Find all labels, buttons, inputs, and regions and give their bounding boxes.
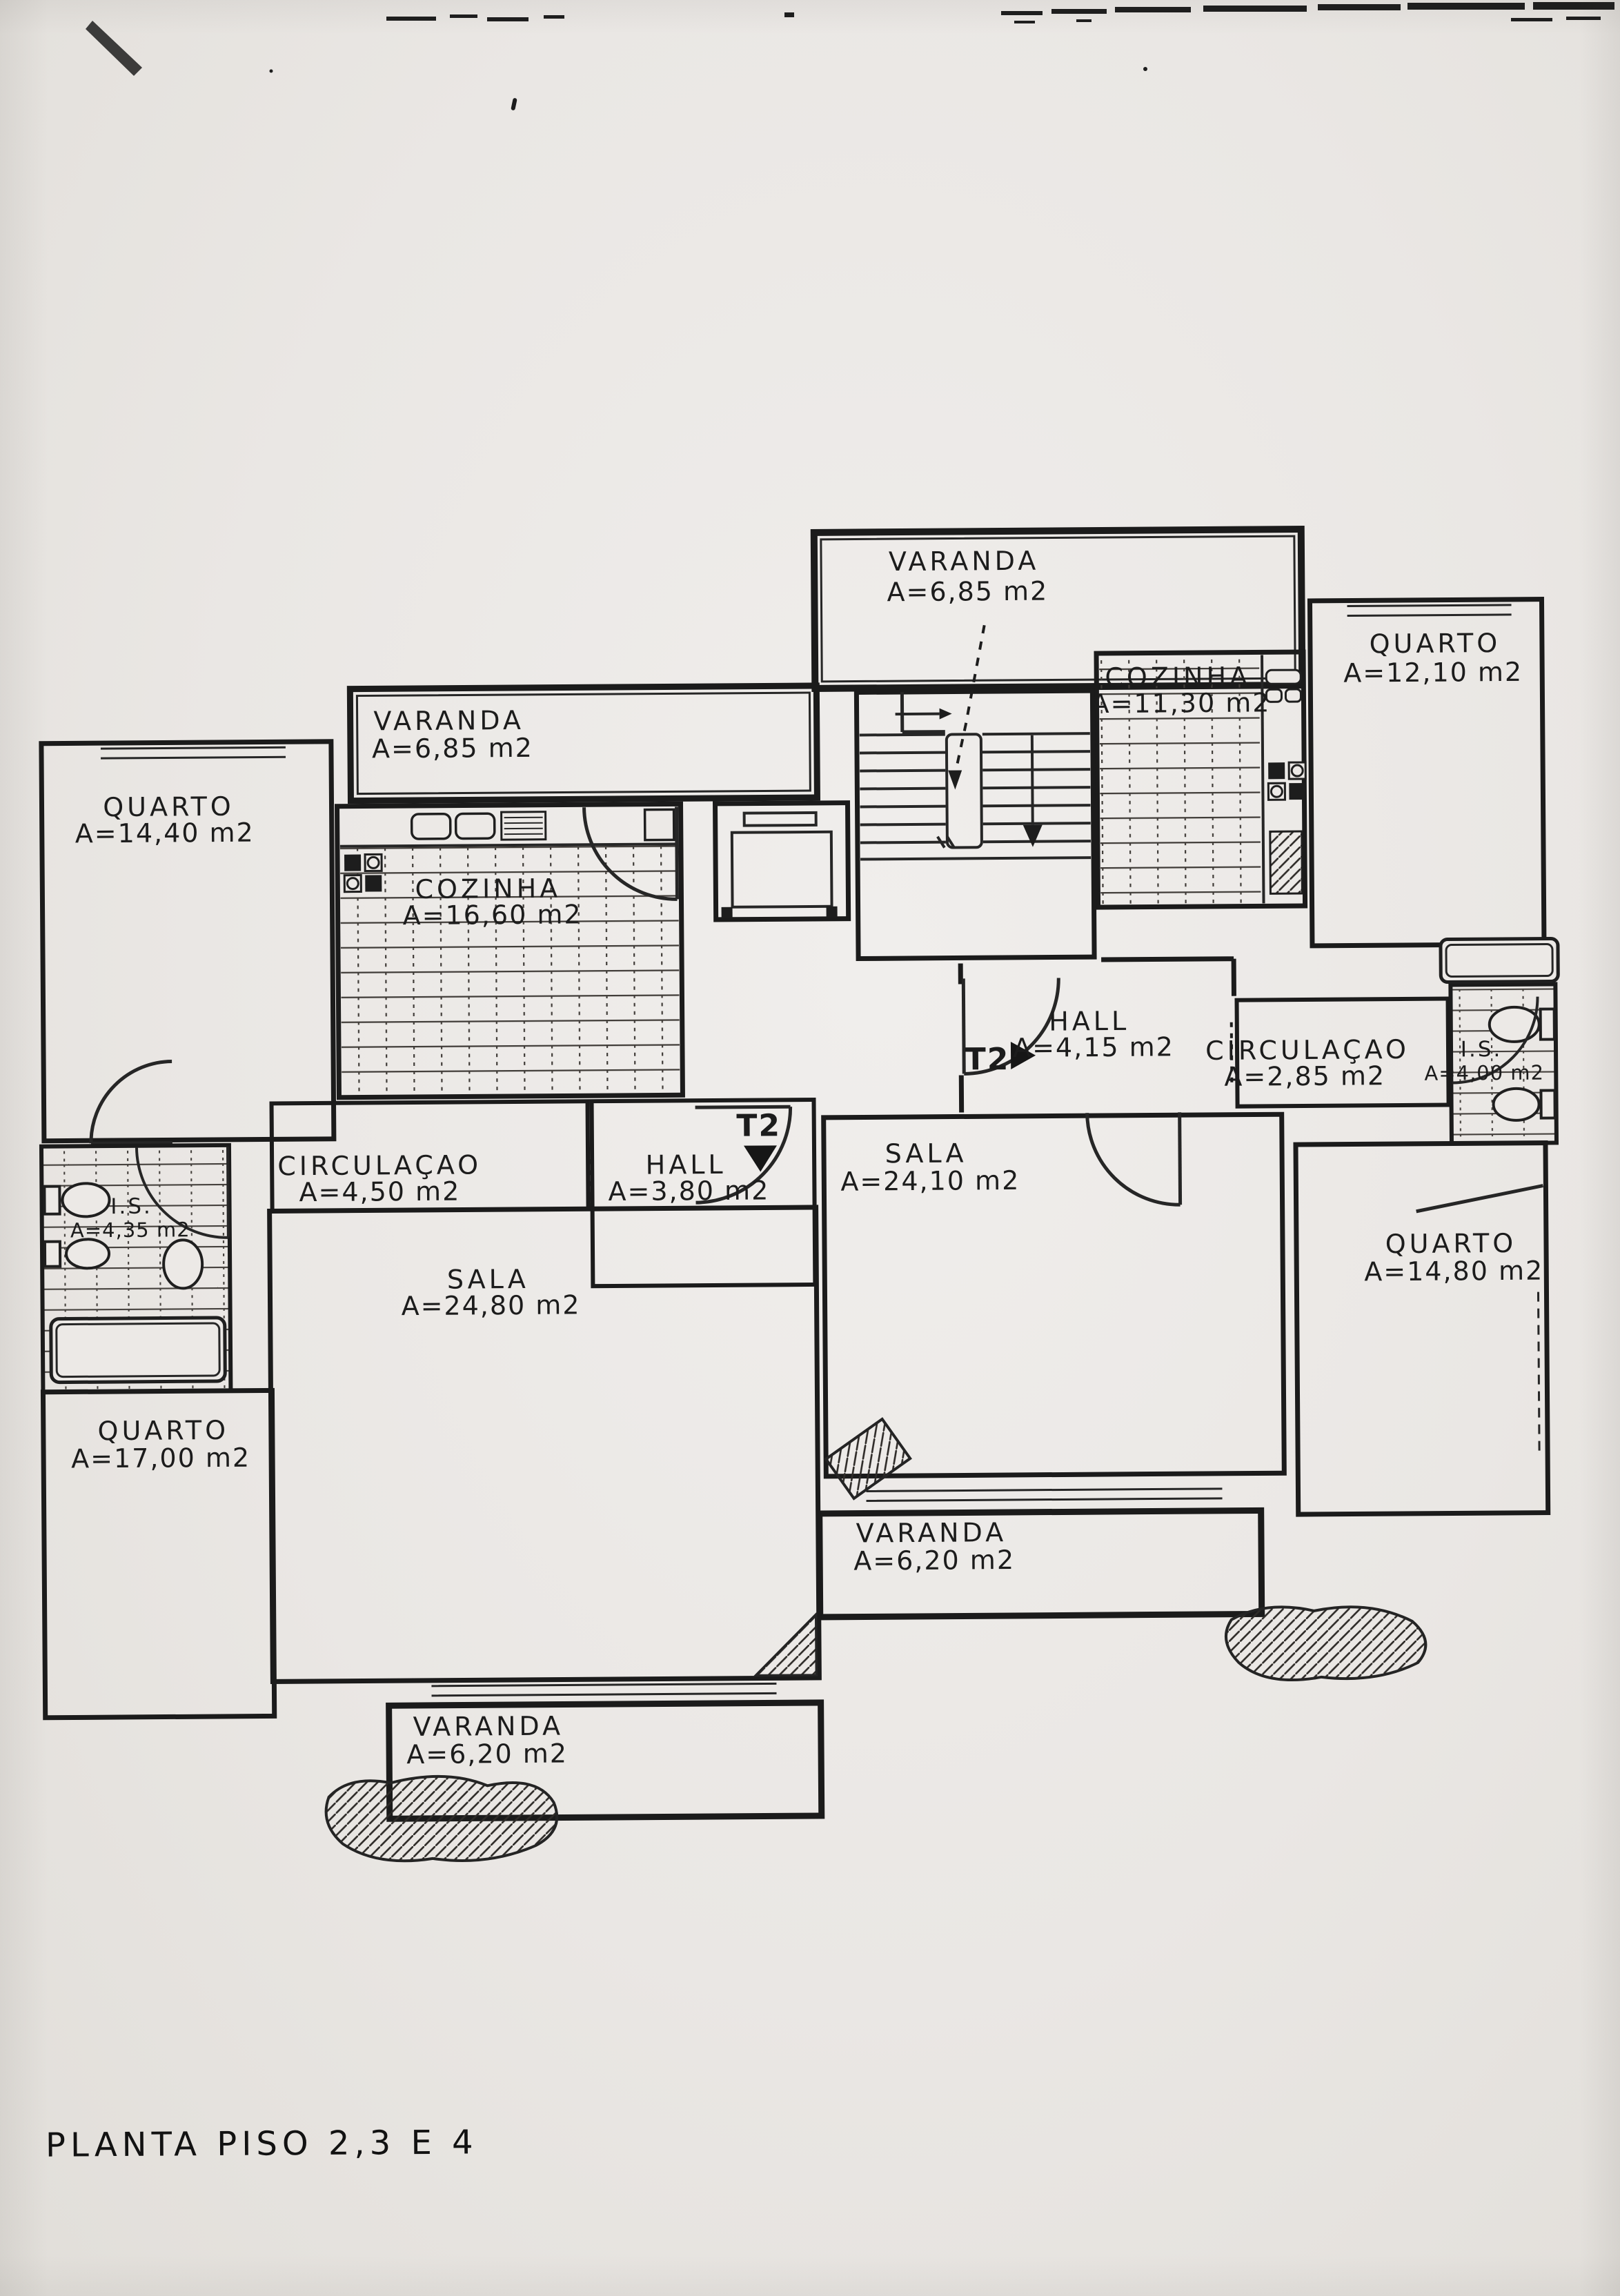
room-hall-right: T2 HALL A=4,15 m2 bbox=[960, 959, 1235, 1113]
corner-hatch-decoration bbox=[826, 1419, 910, 1498]
room-name-label: SALA bbox=[885, 1138, 967, 1169]
room-name-label: VARANDA bbox=[413, 1711, 564, 1743]
room-area-label: A=11,30 m2 bbox=[1091, 687, 1270, 719]
window-icon bbox=[101, 747, 286, 758]
rubble-decoration bbox=[1226, 1606, 1426, 1681]
bidet-icon bbox=[1493, 1088, 1554, 1120]
room-area-label: A=6,20 m2 bbox=[853, 1545, 1015, 1576]
arrow-down-icon bbox=[948, 770, 962, 789]
stairs-icon bbox=[856, 624, 1094, 958]
room-area-label: A=12,10 m2 bbox=[1343, 657, 1523, 689]
corner-hatch-decoration bbox=[755, 1614, 817, 1676]
room-area-label: A=16,60 m2 bbox=[403, 899, 582, 931]
room-sala-left: SALA A=24,80 m2 bbox=[270, 1207, 820, 1682]
window-icon bbox=[866, 1489, 1222, 1501]
room-area-label: A=14,80 m2 bbox=[1364, 1256, 1543, 1287]
room-name-label: VARANDA bbox=[373, 705, 524, 737]
room-name-label: QUARTO bbox=[1370, 628, 1501, 659]
room-area-label: A=4,50 m2 bbox=[299, 1176, 460, 1208]
t2-right-marker: T2 bbox=[965, 1042, 1010, 1077]
room-hall-left: T2 HALL A=3,80 m2 bbox=[592, 1100, 816, 1286]
door-arc bbox=[1087, 1112, 1181, 1205]
room-area-label: A=4,00 m2 bbox=[1424, 1061, 1544, 1085]
room-area-label: A=6,85 m2 bbox=[372, 733, 533, 764]
stove-icon bbox=[1268, 762, 1305, 800]
room-is-left: I.S. A=4,35 m2 bbox=[41, 1145, 230, 1392]
bidet-icon bbox=[45, 1239, 109, 1269]
door-leaf bbox=[1416, 1186, 1543, 1211]
room-is-right: I.S. A=4,00 m2 bbox=[1423, 938, 1559, 1143]
kitchen-sink-icon bbox=[412, 812, 546, 840]
room-quarto-bottom-left: QUARTO A=17,00 m2 bbox=[43, 1390, 274, 1717]
room-area-label: A=6,20 m2 bbox=[406, 1738, 568, 1770]
arrow-right-icon bbox=[940, 709, 952, 720]
t2-left-marker: T2 bbox=[736, 1108, 781, 1143]
room-sala-right: SALA A=24,10 m2 bbox=[824, 1111, 1285, 1498]
room-area-label: A=17,00 m2 bbox=[71, 1443, 250, 1474]
entrance-arrow-down-icon bbox=[744, 1145, 777, 1171]
window-icon bbox=[1347, 605, 1512, 616]
washbasin-icon bbox=[164, 1240, 202, 1288]
floor-plan-drawing: VARANDA A=6,85 m2 QUARTO A=12,10 m2 bbox=[0, 0, 1620, 2296]
room-area-label: A=3,80 m2 bbox=[608, 1175, 769, 1207]
room-area-label: A=4,35 m2 bbox=[70, 1218, 190, 1242]
window-icon bbox=[431, 1683, 776, 1695]
room-circulacao-right: CIRCULAÇAO A=2,85 m2 bbox=[1205, 999, 1449, 1107]
room-area-label: A=24,10 m2 bbox=[840, 1165, 1020, 1197]
paper-corner-fold bbox=[86, 21, 142, 76]
room-name-label: VARANDA bbox=[856, 1517, 1007, 1549]
scan-artifacts bbox=[86, 2, 1614, 110]
room-name-label: VARANDA bbox=[889, 546, 1040, 577]
elevator-icon bbox=[715, 803, 849, 920]
room-cozinha-left: COZINHA A=16,60 m2 bbox=[337, 804, 683, 1097]
plan-group: VARANDA A=6,85 m2 QUARTO A=12,10 m2 bbox=[34, 527, 1566, 2164]
room-cozinha-right: COZINHA A=11,30 m2 bbox=[1091, 652, 1307, 907]
room-area-label: A=6,85 m2 bbox=[887, 576, 1048, 608]
room-name-label: I.S. bbox=[1461, 1037, 1503, 1062]
room-varanda-left: VARANDA A=6,85 m2 bbox=[350, 686, 817, 801]
room-varanda-bottom-mid: VARANDA A=6,20 m2 bbox=[819, 1488, 1261, 1616]
room-quarto-top-right: QUARTO A=12,10 m2 bbox=[1310, 600, 1543, 946]
room-name-label: QUARTO bbox=[97, 1415, 229, 1446]
toilet-icon bbox=[44, 1183, 109, 1217]
page-title: PLANTA PISO 2,3 E 4 bbox=[46, 2123, 478, 2164]
rubble-decoration bbox=[326, 1776, 557, 1862]
room-name-label: I.S. bbox=[110, 1194, 152, 1219]
room-area-label: A=4,15 m2 bbox=[1013, 1031, 1174, 1063]
arrow-down-icon bbox=[1023, 825, 1043, 847]
bathtub-icon bbox=[1441, 938, 1558, 982]
room-area-label: A=24,80 m2 bbox=[401, 1289, 580, 1321]
counter-hatch bbox=[1270, 831, 1303, 893]
room-area-label: A=14,40 m2 bbox=[75, 818, 255, 849]
room-area-label: A=2,85 m2 bbox=[1224, 1060, 1385, 1092]
room-quarto-top-left: QUARTO A=14,40 m2 bbox=[41, 742, 334, 1141]
bathtub-icon bbox=[51, 1318, 226, 1383]
counter-appliance bbox=[645, 809, 674, 840]
door-arc bbox=[90, 1061, 172, 1143]
room-quarto-right: QUARTO A=14,80 m2 bbox=[1296, 1143, 1548, 1515]
room-name-label: QUARTO bbox=[1385, 1228, 1517, 1259]
scanned-floor-plan-page: VARANDA A=6,85 m2 QUARTO A=12,10 m2 bbox=[0, 0, 1620, 2296]
